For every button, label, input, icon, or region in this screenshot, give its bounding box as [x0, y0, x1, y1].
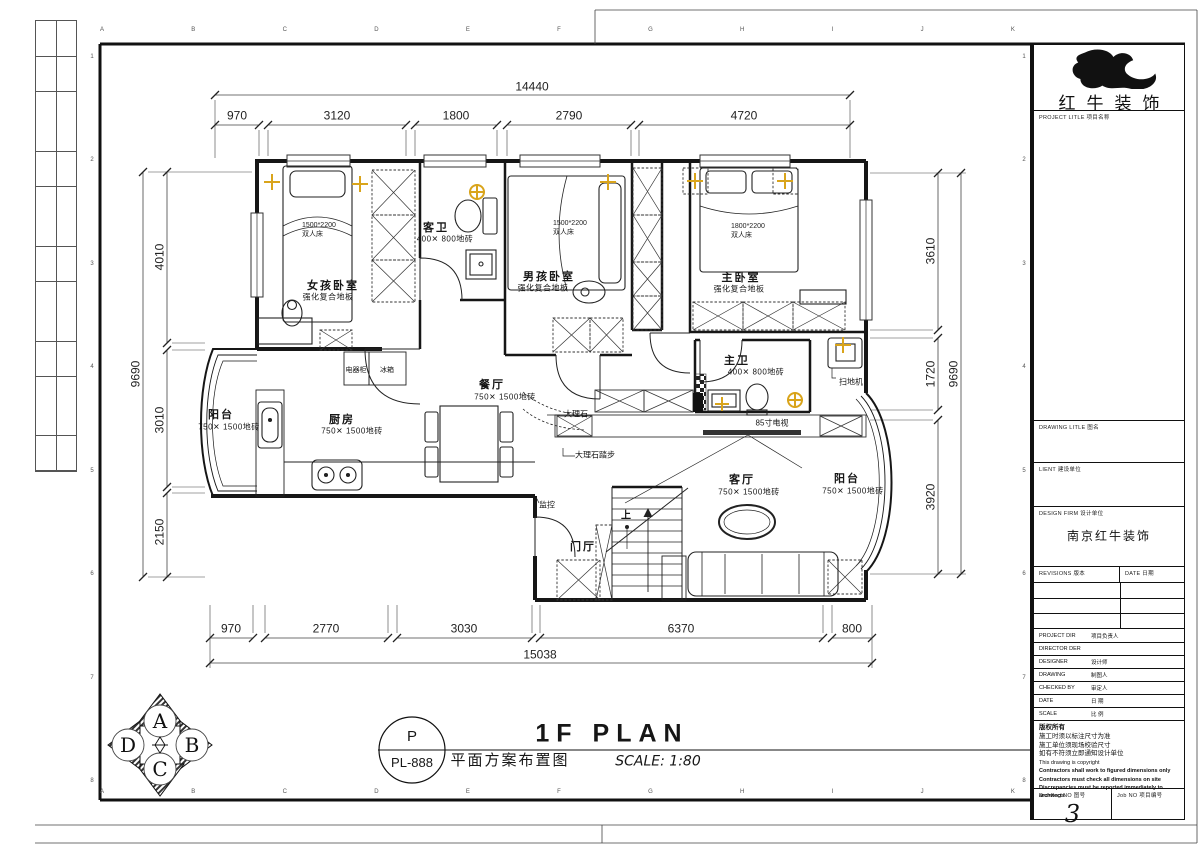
margin-strip-cell	[36, 56, 76, 92]
copyright-line: Contractors shall work to figured dimens…	[1039, 767, 1184, 775]
drawing-no-cell: Drawing NO 图号 3	[1034, 789, 1112, 820]
row-project-dir: PROJECT DIR 项目负责人	[1034, 629, 1184, 643]
dim-bottom-4: 6370	[668, 622, 695, 635]
row-date-cn: 日 期	[1091, 697, 1104, 705]
grid-number: 2	[1022, 157, 1025, 163]
row-checked-by-en: CHECKED BY	[1034, 685, 1091, 691]
grid-letters-top: ABCDEFGHIJK	[100, 27, 1015, 33]
client-label: LIENT 建设单位	[1034, 463, 1184, 473]
revisions-rows	[1034, 583, 1184, 629]
grid-letter: F	[557, 789, 561, 795]
drawing-title-label: DRAWING LITLE 图名	[1034, 421, 1184, 431]
room-boy-bedroom: 男孩卧室	[523, 271, 575, 283]
dim-top-3: 1800	[443, 109, 470, 122]
job-no-label: Job NO 项目编号	[1112, 789, 1184, 799]
row-designer-cn: 设计师	[1091, 658, 1108, 666]
grid-number: 8	[90, 778, 93, 784]
dim-bottom-3: 3030	[451, 622, 478, 635]
job-no-cell: Job NO 项目编号	[1112, 789, 1184, 820]
dim-top-1: 970	[227, 109, 247, 122]
design-firm-label: DESIGN FIRM 设计单位	[1034, 507, 1184, 517]
drawing-no-label: Drawing NO 图号	[1034, 789, 1111, 799]
dim-top-2: 3120	[324, 109, 351, 122]
client-cell: LIENT 建设单位	[1034, 463, 1184, 507]
room-balcony-left: 阳台	[208, 409, 234, 421]
grid-number: 1	[90, 54, 93, 60]
bed-girl-type: 双人床	[302, 230, 336, 239]
grid-letter: A	[100, 789, 104, 795]
dim-right-1: 3610	[924, 238, 937, 265]
dim-left-1: 4010	[153, 244, 166, 271]
copyright-line: 施工时须以标注尺寸为准	[1039, 733, 1184, 742]
room-master-bedroom: 主卧室	[722, 272, 761, 284]
grid-letter: A	[100, 27, 104, 33]
grid-letter: I	[832, 789, 834, 795]
revision-rowline	[1034, 613, 1184, 614]
row-scale-en: SCALE	[1034, 711, 1091, 717]
grid-letter: C	[283, 789, 287, 795]
stairs-up-label: 上	[621, 511, 631, 522]
ref-circle-bottom: PL-888	[391, 756, 433, 770]
row-scale-cn: 比 例	[1091, 710, 1104, 718]
row-director-en: DIRECTOR DER	[1034, 646, 1091, 652]
revision-date-label: DATE 日期	[1120, 567, 1154, 582]
dim-left-total: 9690	[129, 361, 142, 388]
fridge-label: 冰箱	[380, 367, 394, 375]
title-block-logo-cell: 红牛装饰	[1034, 45, 1184, 111]
grid-number: 2	[90, 157, 93, 163]
room-kitchen: 厨房	[329, 414, 355, 426]
row-checked-by: CHECKED BY 审定人	[1034, 681, 1184, 695]
row-drawing-cn: 制图人	[1091, 671, 1108, 679]
grid-number: 7	[1022, 675, 1025, 681]
grid-number: 7	[90, 675, 93, 681]
dim-top-5: 4720	[731, 109, 758, 122]
dim-left-2: 3010	[153, 407, 166, 434]
number-cells: Drawing NO 图号 3 Job NO 项目编号	[1034, 789, 1184, 820]
grid-letter: J	[921, 789, 924, 795]
copyright-line: This drawing is copyright	[1039, 759, 1184, 767]
grid-number: 1	[1022, 54, 1025, 60]
room-master-bath-floor: 400✕ 800地砖	[728, 369, 785, 378]
row-scale: SCALE 比 例	[1034, 707, 1184, 721]
marble-label: 大理石	[564, 411, 588, 420]
grid-number: 6	[1022, 571, 1025, 577]
grid-letter: K	[1011, 27, 1015, 33]
grid-letter: G	[648, 27, 653, 33]
row-date: DATE 日 期	[1034, 694, 1184, 708]
grid-letter: D	[374, 27, 378, 33]
grid-numbers-right: 12345678	[1018, 54, 1030, 784]
room-foyer: 门厅	[570, 541, 596, 553]
grid-letter: F	[557, 27, 561, 33]
compass-a: A	[153, 710, 167, 732]
room-guest-bath-floor: 400✕ 800地砖	[417, 236, 474, 245]
dim-bottom-1: 970	[221, 622, 241, 635]
grid-number: 8	[1022, 778, 1025, 784]
dim-top-total: 14440	[515, 80, 548, 93]
dim-bottom-2: 2770	[313, 622, 340, 635]
room-master-bedroom-floor: 强化复合地板	[714, 286, 765, 295]
grid-letter: B	[191, 789, 195, 795]
bed-boy-type: 双人床	[553, 228, 587, 237]
margin-strip-cell	[36, 246, 76, 282]
grid-letter: B	[191, 27, 195, 33]
copyright-line: 如有不符须立即通知设计单位	[1039, 750, 1184, 759]
row-director: DIRECTOR DER	[1034, 642, 1184, 656]
copyright-cell: 版权所有施工时须以标注尺寸为准施工单位须现场校验尺寸如有不符须立即通知设计单位T…	[1034, 720, 1184, 789]
sheet-margin-strip	[35, 20, 77, 472]
bed-master-label: 1800*2200 双人床	[731, 222, 765, 241]
row-project-dir-en: PROJECT DIR	[1034, 633, 1091, 639]
bed-girl-label: 1500*2200 双人床	[302, 221, 336, 240]
margin-strip-cell	[36, 341, 76, 377]
dim-bottom-total: 15038	[523, 648, 556, 661]
grid-letter: J	[921, 27, 924, 33]
project-title-cell: PROJECT LITLE 项目名称	[1034, 111, 1184, 421]
bed-master-size: 1800*2200	[731, 222, 765, 231]
dim-right-2: 1720	[924, 361, 937, 388]
row-checked-by-cn: 审定人	[1091, 684, 1108, 692]
plan-subtitle: 平面方案布置图	[450, 753, 569, 770]
bed-boy-label: 1500*2200 双人床	[553, 219, 587, 238]
copyright-line: 施工单位须现场校验尺寸	[1039, 742, 1184, 751]
marble-step-label: 大理石踏步	[575, 452, 615, 461]
grid-letter: G	[648, 789, 653, 795]
project-title-label: PROJECT LITLE 项目名称	[1034, 111, 1184, 121]
grid-letter: H	[740, 789, 744, 795]
grid-number: 6	[90, 571, 93, 577]
design-firm-cell: DESIGN FIRM 设计单位 南京红牛装饰	[1034, 507, 1184, 567]
row-designer-en: DESIGNER	[1034, 659, 1091, 665]
robot-vacuum-label: 扫地机	[839, 379, 863, 388]
room-guest-bath: 客卫	[423, 222, 449, 234]
drawing-no-value: 3	[1034, 800, 1111, 828]
grid-letter: D	[374, 789, 378, 795]
scale-text: SCALE: 1:80	[615, 754, 701, 769]
grid-number: 5	[1022, 468, 1025, 474]
grid-number: 3	[1022, 261, 1025, 267]
dim-bottom-5: 800	[842, 622, 862, 635]
drawing-title-cell: DRAWING LITLE 图名	[1034, 421, 1184, 463]
dim-top-4: 2790	[556, 109, 583, 122]
row-drawing: DRAWING 制图人	[1034, 668, 1184, 682]
grid-number: 4	[1022, 364, 1025, 370]
revision-rowline	[1034, 598, 1184, 599]
title-block: 红牛装饰 PROJECT LITLE 项目名称 DRAWING LITLE 图名…	[1030, 44, 1185, 820]
doors	[365, 258, 742, 557]
tv-label: 85寸电视	[756, 420, 789, 429]
wardrobe-boxes	[320, 168, 866, 600]
copyright-line: 版权所有	[1039, 724, 1184, 733]
appliance-cabinet-label: 电器柜	[346, 367, 367, 375]
room-living: 客厅	[729, 474, 755, 486]
room-living-floor: 750✕ 1500地砖	[718, 489, 780, 498]
grid-number: 3	[90, 261, 93, 267]
grid-letters-bottom: ABCDEFGHIJK	[100, 789, 1015, 795]
grid-letter: E	[466, 789, 470, 795]
room-balcony-left-floor: 750✕ 1500地砖	[198, 424, 260, 433]
dim-right-3: 3920	[924, 484, 937, 511]
compass-c: C	[152, 758, 167, 780]
grid-number: 5	[90, 468, 93, 474]
copyright-line: Contractors must check all dimensions on…	[1039, 776, 1184, 784]
bed-girl-size: 1500*2200	[302, 221, 336, 230]
room-kitchen-floor: 750✕ 1500地砖	[321, 428, 383, 437]
dim-right-total: 9690	[947, 361, 960, 388]
margin-strip-cell	[36, 151, 76, 187]
margin-strip-cell	[36, 435, 76, 471]
grid-letter: C	[283, 27, 287, 33]
plan-title: 1F PLAN	[535, 720, 688, 748]
compass-d: D	[120, 734, 136, 756]
bed-master-type: 双人床	[731, 231, 765, 240]
revisions-label: REVISIONS 版本	[1034, 567, 1120, 582]
room-master-bath: 主卫	[724, 355, 750, 367]
design-firm-value: 南京红牛装饰	[1034, 527, 1184, 544]
ref-circle-top: P	[407, 729, 417, 746]
revisions-divider	[1120, 583, 1121, 628]
revisions-header: REVISIONS 版本 DATE 日期	[1034, 567, 1184, 583]
grid-letter: E	[466, 27, 470, 33]
room-girl-bedroom-floor: 强化复合地板	[303, 294, 354, 303]
room-dining-floor: 750✕ 1500地砖	[474, 394, 536, 403]
compass-b: B	[185, 734, 200, 756]
row-date-en: DATE	[1034, 698, 1091, 704]
grid-numbers-left: 12345678	[86, 54, 98, 784]
company-logo-icon	[1054, 47, 1164, 89]
row-drawing-en: DRAWING	[1034, 672, 1091, 678]
grid-letter: H	[740, 27, 744, 33]
row-designer: DESIGNER 设计师	[1034, 655, 1184, 669]
bed-boy-size: 1500*2200	[553, 219, 587, 228]
room-dining: 餐厅	[479, 379, 505, 391]
monitor-label: 监控	[539, 502, 555, 511]
room-boy-bedroom-floor: 强化复合地板	[518, 285, 569, 294]
dim-left-3: 2150	[153, 519, 166, 546]
grid-letter: K	[1011, 789, 1015, 795]
row-project-dir-cn: 项目负责人	[1091, 632, 1119, 640]
cad-sheet: { "sheet": { "grid_letters": ["A","B","C…	[0, 0, 1200, 845]
room-balcony-right-floor: 750✕ 1500地砖	[822, 488, 884, 497]
room-balcony-right: 阳台	[834, 473, 860, 485]
grid-number: 4	[90, 364, 93, 370]
room-girl-bedroom: 女孩卧室	[307, 280, 359, 292]
grid-letter: I	[832, 27, 834, 33]
drawing-ref-symbol	[378, 717, 1030, 783]
